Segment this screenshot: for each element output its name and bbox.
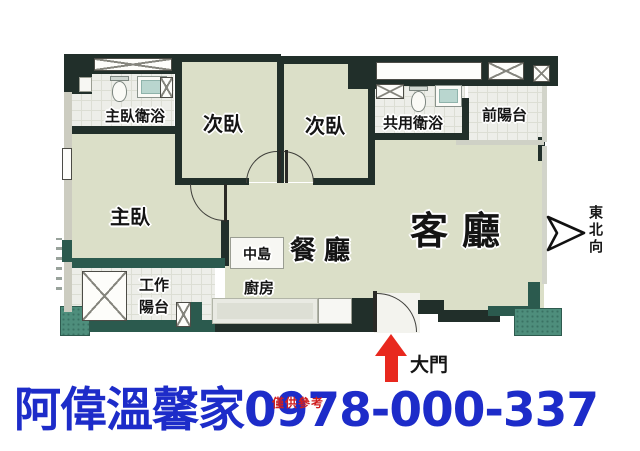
balcony-right-light-wall [542,86,547,142]
sink-icon [435,85,462,107]
bedroom-a-top-wall [178,54,281,62]
room-label-bedroom-a: 次臥 [203,108,243,137]
northeast-arrow-icon [545,213,587,255]
room-label-bedroom-b: 次臥 [305,110,345,139]
bedroom-a-left-wall [175,60,182,185]
bedroom-b-door-panel [285,150,288,183]
red-watermark: 僅供參考 [272,394,324,411]
bedroom-a-door-panel [278,150,281,183]
phone-number: 0978-000-337 [244,383,598,439]
entrance-label: 大門 [410,350,448,377]
room-label-island: 中島 [243,244,271,264]
work-balcony-right-wall [190,302,202,332]
master-bath-bottom-wall [64,126,178,134]
room-label-front-balcony: 前陽台 [482,104,527,125]
meter-ticks [56,238,62,290]
shared-bath-bottom-wall [373,133,465,140]
room-label-dining-room: 餐廳 [290,230,358,267]
room-label-master-bath: 主臥衛浴 [105,105,165,126]
master-door-panel [224,184,227,222]
window-strip [376,62,482,80]
window-x-icon [176,302,191,327]
window-x-icon [94,58,172,71]
balcony-bottom-rail [456,140,544,145]
toilet-icon [112,81,127,102]
bath-counter-icon [376,84,404,99]
work-balcony-left-wall [64,262,72,312]
bedroom-b-right-wall [368,60,375,185]
footer-contact-line: 阿偉溫馨家0978-000-337 [14,383,634,439]
bath-shelf-icon [79,77,92,92]
room-label-work-balcony-2: 陽台 [139,296,169,317]
kitchen-counter [212,298,318,324]
window-x-icon [488,62,524,80]
bedroom-b-top-wall [281,56,351,64]
room-label-shared-bath: 共用衛浴 [383,112,443,133]
kitchen-appliance [318,298,352,324]
window-x-icon [533,65,550,82]
bedroom-b-bottom-wall [313,178,375,185]
toilet-icon [411,91,426,112]
agency-name: 阿偉溫馨家 [14,383,244,439]
entrance-arrow-icon [375,334,407,382]
washer-x-icon [82,271,127,321]
left-outer-wall-teal [62,240,72,262]
floorplan-image: 主臥衛浴 次臥 次臥 共用衛浴 前陽台 主臥 客廳 餐廳 中島 廚房 工作 陽台… [0,0,640,451]
master-bottom-teal-wall [64,258,225,268]
compass-label: 東北向 [585,205,605,256]
room-label-living-room: 客廳 [410,200,514,255]
left-wall-window [62,148,72,180]
bottom-right-pillar [514,308,562,336]
living-right-teal-wall [528,282,540,310]
room-label-kitchen: 廚房 [244,277,274,298]
bath-balcony-divider-wall [462,98,469,140]
room-label-master-bedroom: 主臥 [110,201,150,230]
bath-cabinet-icon [160,77,173,98]
counter-right-block-wall [352,298,374,330]
room-label-work-balcony-1: 工作 [139,274,169,295]
